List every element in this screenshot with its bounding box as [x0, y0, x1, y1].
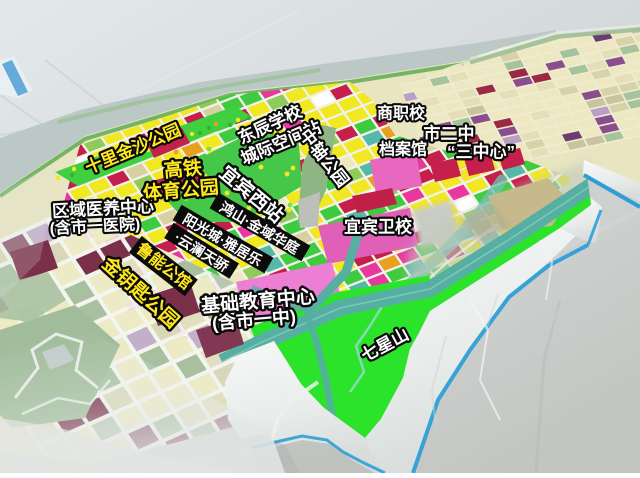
svg-text:“三中心”: “三中心” — [447, 142, 515, 162]
svg-text:档案馆: 档案馆 — [379, 140, 427, 159]
svg-text:宜宾卫校: 宜宾卫校 — [344, 217, 413, 237]
svg-text:市二中: 市二中 — [424, 124, 475, 144]
svg-text:商职校: 商职校 — [377, 104, 426, 123]
